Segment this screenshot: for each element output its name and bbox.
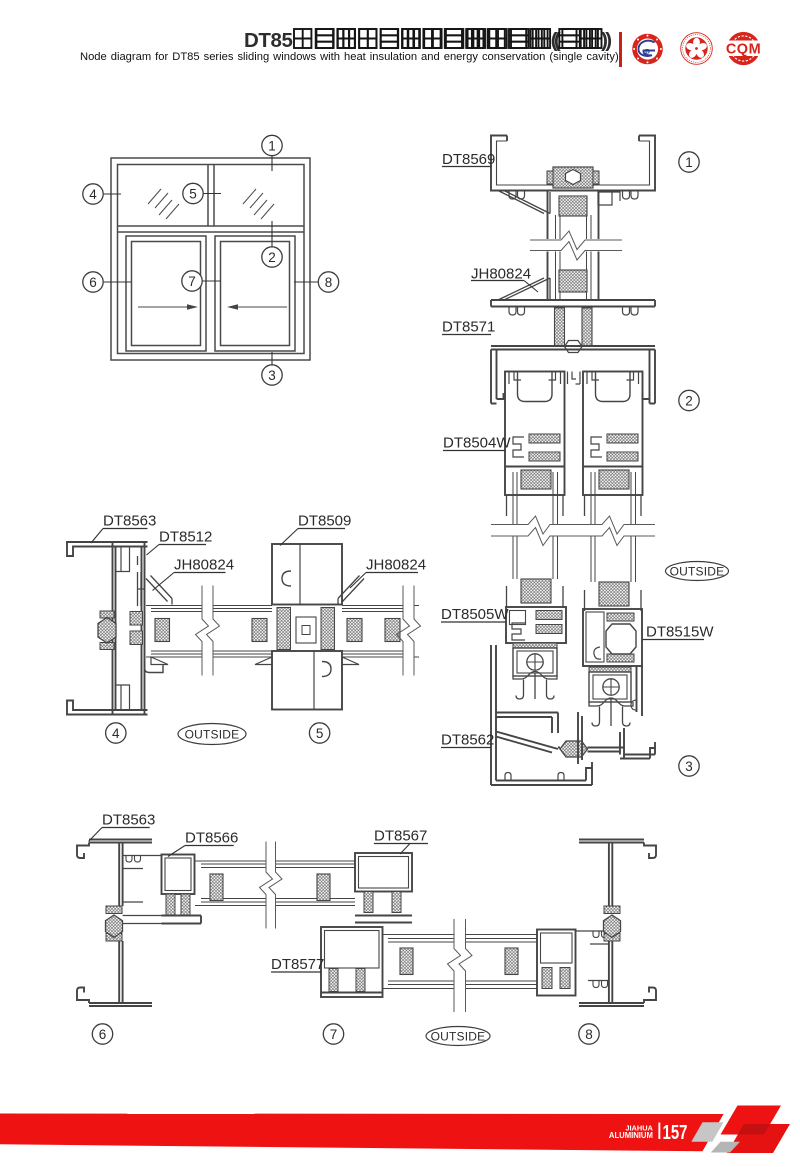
svg-text:6: 6 [89,275,97,290]
svg-text:JH80824: JH80824 [366,557,426,574]
svg-text:3: 3 [685,759,693,774]
svg-text:DT8569: DT8569 [442,151,495,168]
svg-text:1: 1 [685,155,693,170]
svg-text:DT8505W: DT8505W [441,606,509,623]
svg-text:DT8504W: DT8504W [443,435,511,452]
svg-text:DT8512: DT8512 [159,529,212,546]
svg-text:DT8577: DT8577 [271,956,324,973]
svg-text:2: 2 [685,393,693,408]
svg-text:4: 4 [112,726,120,741]
svg-text:DT8562: DT8562 [441,732,494,749]
svg-text:DT8563: DT8563 [103,513,156,530]
svg-text:7: 7 [330,1027,338,1042]
svg-text:1: 1 [268,138,276,153]
svg-text:5: 5 [189,186,197,201]
svg-text:7: 7 [188,274,196,289]
svg-text:4: 4 [89,187,97,202]
svg-text:DT8567: DT8567 [374,828,427,845]
svg-text:2: 2 [268,250,276,265]
svg-text:8: 8 [325,275,333,290]
svg-text:8: 8 [585,1027,593,1042]
svg-text:OUTSIDE: OUTSIDE [670,565,725,579]
svg-text:DT8509: DT8509 [298,513,351,530]
svg-text:157: 157 [663,1121,688,1144]
svg-text:ALUMINIUM: ALUMINIUM [609,1131,653,1140]
svg-text:DT8566: DT8566 [185,830,238,847]
svg-text:OUTSIDE: OUTSIDE [185,728,240,742]
svg-text:5: 5 [316,726,324,741]
svg-text:DT8515W: DT8515W [646,624,714,641]
svg-text:6: 6 [99,1027,107,1042]
svg-text:OUTSIDE: OUTSIDE [431,1030,486,1044]
svg-text:DT8571: DT8571 [442,319,495,336]
svg-text:DT8563: DT8563 [102,812,155,829]
svg-text:JH80824: JH80824 [174,557,234,574]
svg-text:3: 3 [268,368,276,383]
